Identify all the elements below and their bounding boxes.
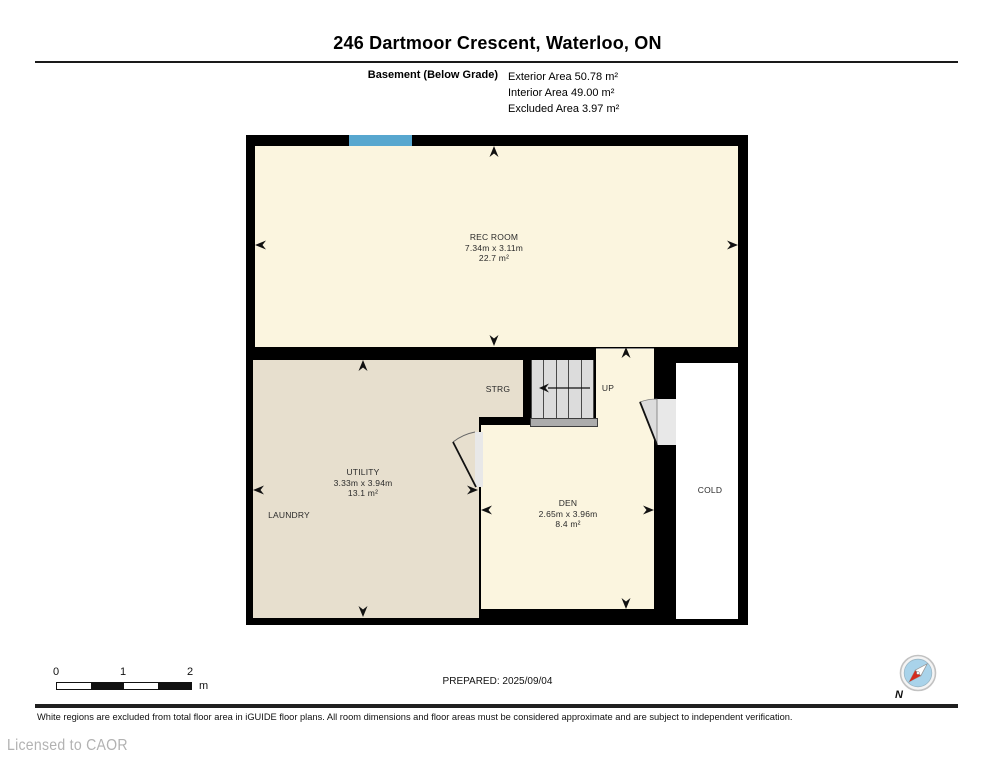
prepared-date: PREPARED: 2025/09/04 — [0, 676, 995, 687]
floor-plan-page: 246 Dartmoor Crescent, Waterloo, ON Base… — [0, 0, 995, 768]
door-opening-utility-den — [475, 432, 483, 487]
floor-label: Basement (Below Grade) — [218, 69, 498, 81]
room-label-cold: COLD — [680, 485, 740, 496]
stair-landing — [530, 418, 598, 427]
floor-plan: REC ROOM 7.34m x 3.11m 22.7 m² STRG UP U… — [246, 135, 748, 625]
room-area: 8.4 m² — [508, 519, 628, 530]
room-label-utility: UTILITY 3.33m x 3.94m 13.1 m² — [303, 467, 423, 499]
stair-tread — [531, 360, 544, 418]
interior-area: Interior Area 49.00 m² — [508, 85, 619, 101]
window-marker — [349, 135, 412, 146]
excluded-area: Excluded Area 3.97 m² — [508, 101, 619, 117]
room-label-storage: STRG — [468, 384, 528, 395]
room-label-up: UP — [593, 383, 623, 394]
room-name: REC ROOM — [434, 232, 554, 243]
stairs — [531, 360, 594, 418]
room-name: DEN — [508, 498, 628, 509]
compass-north-label: N — [895, 689, 903, 701]
room-label-rec-room: REC ROOM 7.34m x 3.11m 22.7 m² — [434, 232, 554, 264]
room-label-laundry: LAUNDRY — [259, 510, 319, 521]
page-title: 246 Dartmoor Crescent, Waterloo, ON — [0, 33, 995, 54]
room-dims: 7.34m x 3.11m — [434, 243, 554, 254]
stair-tread — [569, 360, 581, 418]
room-dims: 2.65m x 3.96m — [508, 509, 628, 520]
stair-tread — [544, 360, 556, 418]
stair-tread — [557, 360, 569, 418]
door-opening-hall-cold — [656, 399, 676, 445]
room-label-den: DEN 2.65m x 3.96m 8.4 m² — [508, 498, 628, 530]
footer-divider — [35, 704, 958, 708]
area-summary: Exterior Area 50.78 m² Interior Area 49.… — [508, 69, 619, 117]
exterior-area: Exterior Area 50.78 m² — [508, 69, 619, 85]
room-dims: 3.33m x 3.94m — [303, 478, 423, 489]
license-text: Licensed to CAOR — [7, 737, 128, 755]
room-area: 22.7 m² — [434, 253, 554, 264]
disclaimer-text: White regions are excluded from total fl… — [37, 712, 937, 722]
header-divider — [35, 61, 958, 63]
room-name: UTILITY — [303, 467, 423, 478]
room-area: 13.1 m² — [303, 488, 423, 499]
